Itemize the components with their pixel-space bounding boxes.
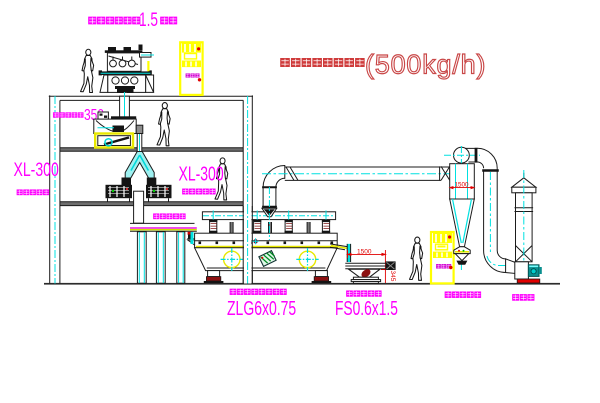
- svg-text:345: 345: [389, 271, 396, 282]
- svg-text:XL-300: XL-300: [14, 159, 59, 181]
- svg-text:(500kg/h): (500kg/h): [365, 50, 486, 80]
- svg-text:XL-300: XL-300: [179, 162, 224, 185]
- svg-text:1500: 1500: [357, 248, 372, 255]
- svg-text:1.5: 1.5: [139, 9, 158, 31]
- svg-text:ZLG6x0.75: ZLG6x0.75: [227, 296, 296, 319]
- svg-text:FS0.6x1.5: FS0.6x1.5: [335, 296, 398, 319]
